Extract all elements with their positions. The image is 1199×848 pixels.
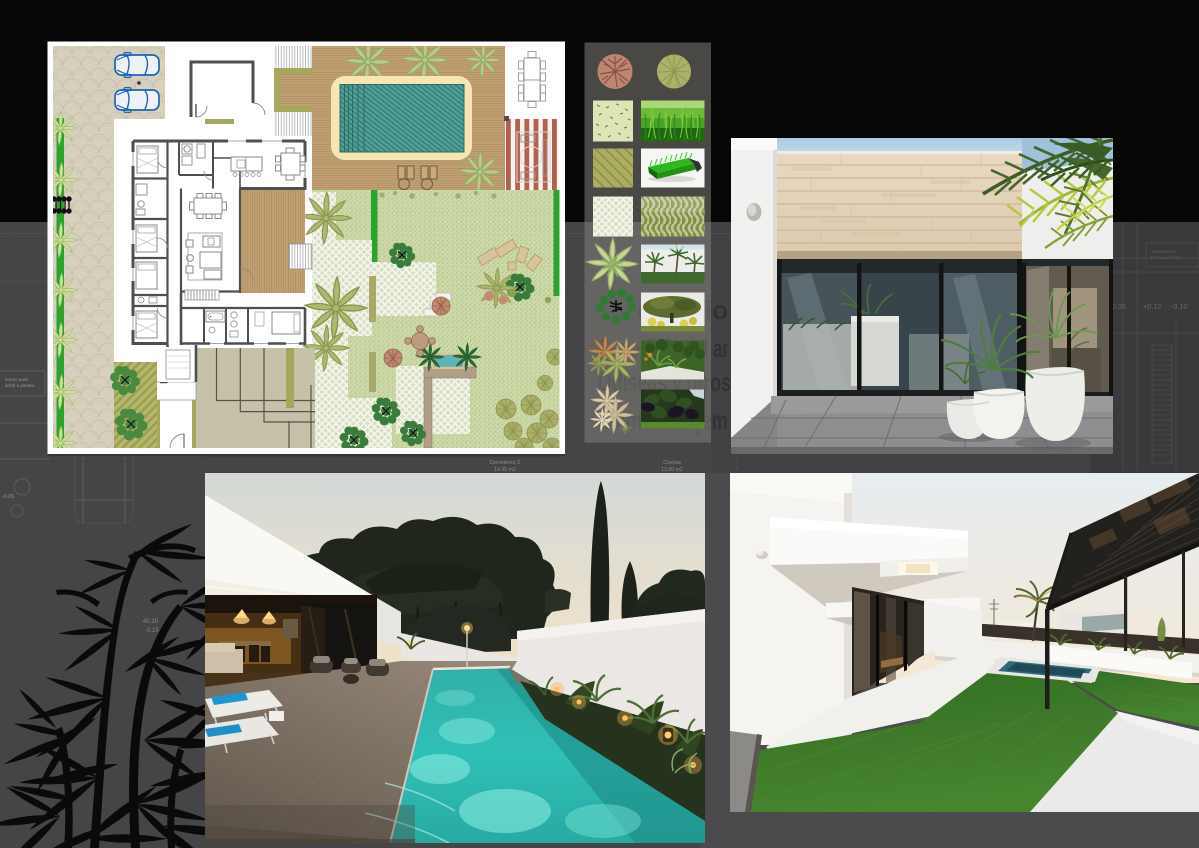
svg-text:14.35 m2: 14.35 m2 [494,467,516,473]
svg-text:Cocina: Cocina [663,460,681,466]
svg-text:-0.15: -0.15 [145,628,159,634]
svg-text:ARMARIO DE: ARMARIO DE [1152,249,1178,254]
svg-text:13.00 m2: 13.00 m2 [661,467,683,473]
svg-text:40.10: 40.10 [143,619,159,625]
svg-text:árbol a plantar: árbol a plantar [5,383,35,388]
svg-text:-0.10: -0.10 [1171,302,1187,311]
svg-text:hueco para: hueco para [5,377,28,382]
svg-text:0.36: 0.36 [1112,302,1126,311]
svg-text:Dormitorio 2: Dormitorio 2 [490,460,520,466]
svg-text:+0.12: +0.12 [1143,302,1161,311]
svg-text:INSTALACIONES: INSTALACIONES [1150,255,1182,260]
svg-text:-0.05: -0.05 [2,494,14,500]
